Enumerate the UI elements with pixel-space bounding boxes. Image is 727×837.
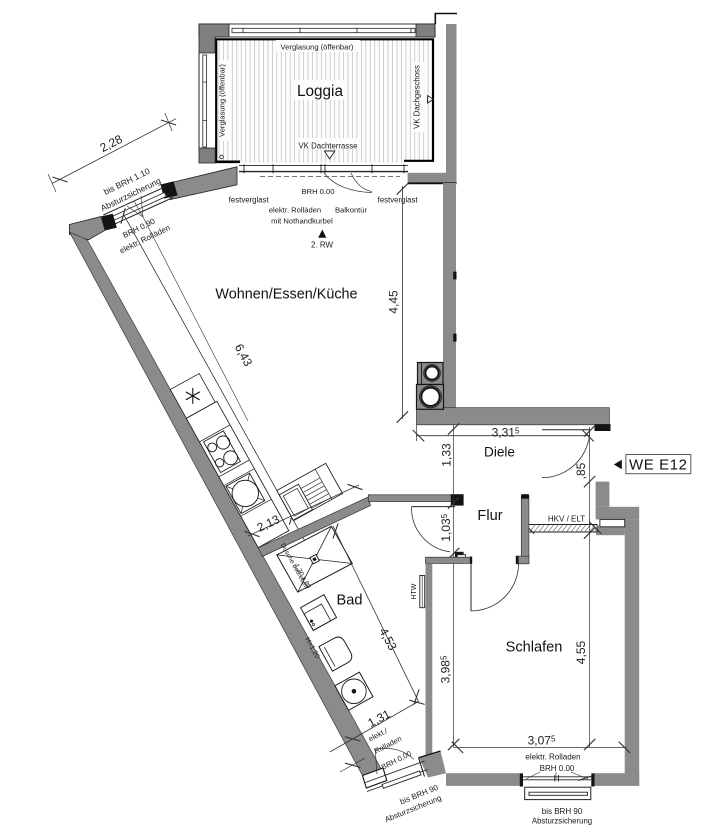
svg-text:Wohnen/Essen/Küche: Wohnen/Essen/Küche <box>215 287 357 303</box>
svg-text:BRH 0.00: BRH 0.00 <box>302 187 335 196</box>
svg-text:HTW: HTW <box>411 583 418 599</box>
svg-text:Verglasung (öffenbar): Verglasung (öffenbar) <box>281 43 354 52</box>
svg-text:Balkontür: Balkontür <box>335 206 368 215</box>
svg-text:HKV / ELT: HKV / ELT <box>548 515 585 524</box>
svg-text:festverglast: festverglast <box>229 196 270 205</box>
svg-text:VK Dachterrasse: VK Dachterrasse <box>299 142 358 151</box>
svg-text:4,55: 4,55 <box>574 640 588 664</box>
svg-text:Schlafen: Schlafen <box>506 640 563 656</box>
svg-text:elektr. Rolläden: elektr. Rolläden <box>269 206 321 215</box>
svg-text:Loggia: Loggia <box>297 83 343 100</box>
svg-text:festverglast: festverglast <box>378 196 419 205</box>
svg-text:Absturzsicherung: Absturzsicherung <box>532 817 592 826</box>
svg-text:1,33: 1,33 <box>439 443 453 467</box>
svg-text:2. RW: 2. RW <box>311 241 334 250</box>
svg-text:BRH 0.00: BRH 0.00 <box>540 764 575 773</box>
svg-text:,85: ,85 <box>574 462 588 479</box>
svg-text:4,45: 4,45 <box>387 290 401 314</box>
svg-text:VK Dachgeschoss: VK Dachgeschoss <box>413 65 422 129</box>
svg-text:Flur: Flur <box>477 508 502 524</box>
svg-text:bis BRH 90: bis BRH 90 <box>542 807 583 816</box>
svg-text:Verglasung (öffenbar): Verglasung (öffenbar) <box>218 64 227 137</box>
svg-text:WE E12: WE E12 <box>629 457 688 474</box>
svg-text:mit Nothandkurbel: mit Nothandkurbel <box>271 217 333 226</box>
svg-text:Bad: Bad <box>337 593 363 609</box>
svg-text:elektr. Rolladen: elektr. Rolladen <box>525 753 580 762</box>
svg-text:Diele: Diele <box>484 445 515 460</box>
